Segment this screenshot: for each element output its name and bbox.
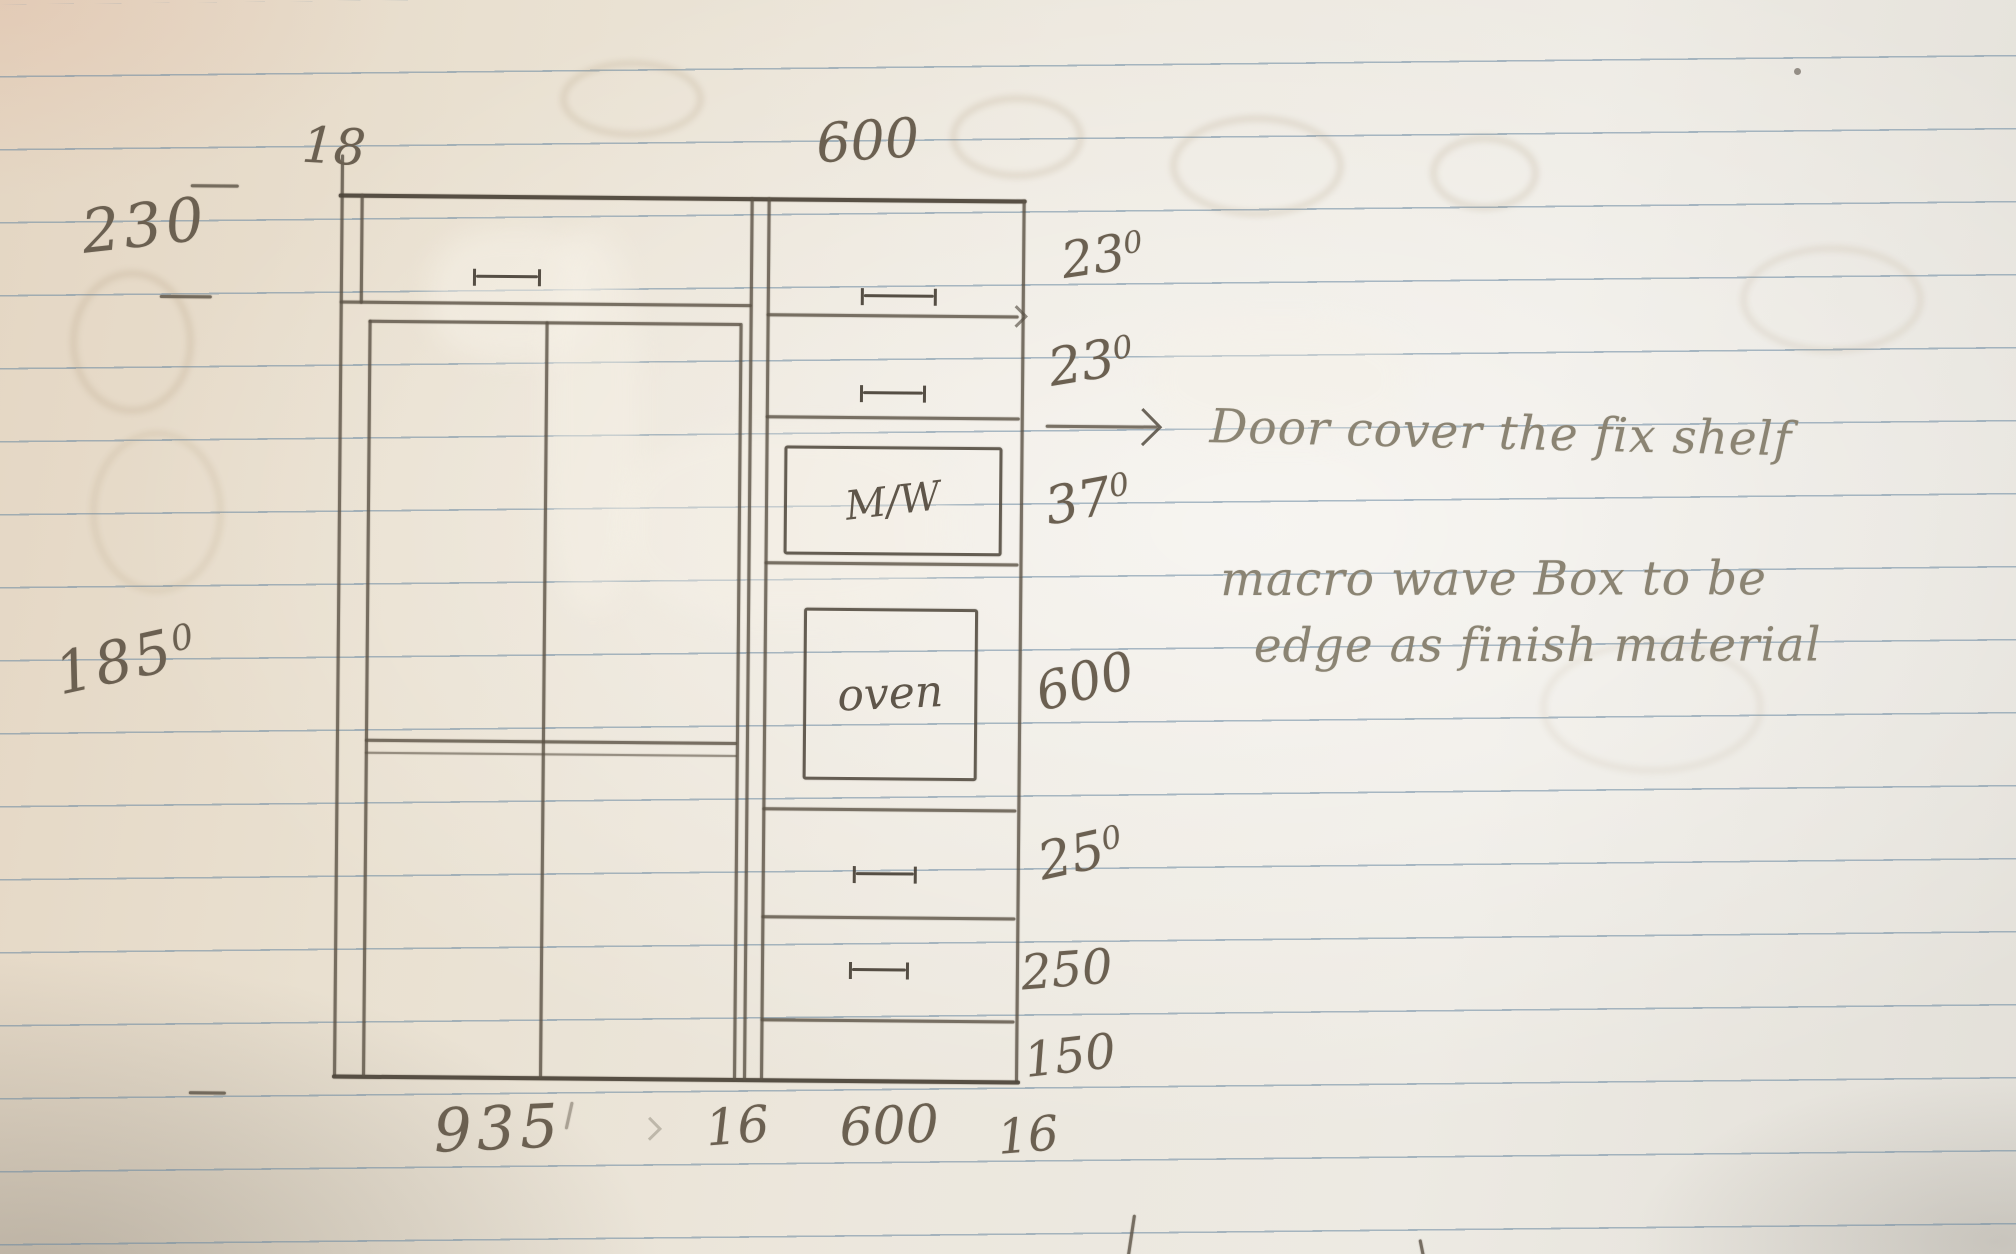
stray-stroke (1418, 1239, 1429, 1254)
dim-total-height: 1850 (50, 616, 201, 703)
dim-tick (160, 295, 212, 298)
door-handle (473, 269, 541, 287)
dim-sup: 0 (1121, 224, 1145, 261)
stray-stroke (565, 1102, 574, 1130)
shelf-row-line (764, 561, 1018, 566)
dim-right-230a: 230 (1058, 224, 1147, 286)
door-panel-middle (539, 321, 549, 1078)
dim-right-150: 150 (1022, 1027, 1118, 1085)
notebook-page: M/W oven 18 600 230 1850 230 230 370 600 (0, 0, 2016, 1254)
cabinet-top-edge (339, 194, 1027, 204)
microwave-box: M/W (784, 445, 1003, 556)
left-top-section-line (340, 301, 752, 308)
divider-line-right (760, 197, 771, 1080)
dim-right-600: 600 (1031, 644, 1140, 719)
note-arrow-head (1124, 408, 1162, 446)
shelf-row-line (762, 807, 1016, 812)
door-panel-left (362, 320, 372, 1077)
microwave-label: M/W (843, 476, 942, 527)
divider-line-left (743, 197, 754, 1080)
drawer-handle (860, 385, 926, 403)
drawer-row-line (767, 313, 1019, 318)
stray-chevron (638, 1117, 662, 1141)
dim-base: 150 (1021, 1023, 1118, 1089)
dim-right-250a: 250 (1033, 819, 1128, 888)
dim-top-width: 600 (815, 111, 921, 171)
door-panel-right (733, 323, 743, 1080)
dim-total-height-base: 185 (49, 616, 181, 708)
cabinet-bottom-edge (332, 1075, 1020, 1085)
plinth-row-line (761, 1018, 1015, 1023)
dim-base: 23 (1057, 223, 1128, 290)
dim-bottom-935: 935 (432, 1096, 564, 1162)
note-line-3: edge as finish material (1254, 622, 1822, 670)
cabinet-sketch: M/W oven 18 600 230 1850 230 230 370 600 (0, 0, 2016, 1254)
dim-tick (189, 1091, 226, 1094)
door-split-line (365, 739, 737, 745)
door-split-line (365, 752, 737, 757)
dim-base: 250 (1019, 938, 1115, 1001)
dim-top-section-height: 230 (78, 189, 211, 263)
drawer-handle (853, 866, 917, 884)
door-panel-top (369, 320, 741, 326)
dim-right-370: 370 (1041, 467, 1135, 534)
stray-stroke (1126, 1215, 1136, 1254)
dim-bottom-16b: 16 (996, 1109, 1061, 1162)
cabinet-left-edge (333, 155, 344, 1077)
drawer-handle (861, 288, 937, 306)
note-line-2: macro wave Box to be (1220, 555, 1767, 603)
dim-right-230b: 230 (1045, 329, 1138, 394)
dim-panel-thickness: 18 (301, 120, 368, 174)
dim-right-250b: 250 (1019, 942, 1114, 997)
drawer-row-line (761, 915, 1015, 920)
dim-base: 23 (1044, 329, 1119, 399)
drawer-handle (849, 962, 909, 980)
dim-bottom-16a: 16 (704, 1099, 771, 1154)
note-line-1: Door cover the fix shelf (1209, 403, 1792, 463)
oven-label: oven (837, 670, 945, 719)
drawer-row-line (766, 415, 1020, 420)
dim-base: 600 (1030, 641, 1141, 724)
dim-base: 37 (1040, 466, 1116, 537)
side-panel-line (360, 194, 364, 304)
dim-sup: 0 (1110, 329, 1136, 368)
oven-box: oven (803, 608, 978, 782)
dim-bottom-600: 600 (839, 1098, 940, 1154)
